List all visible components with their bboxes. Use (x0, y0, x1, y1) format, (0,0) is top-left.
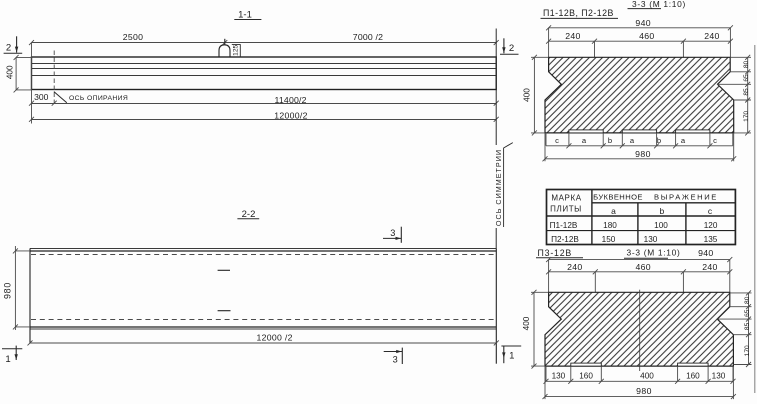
svg-text:80: 80 (744, 296, 751, 304)
svg-text:160: 160 (686, 372, 700, 381)
svg-text:65: 65 (744, 309, 751, 317)
svg-text:МАРКА: МАРКА (551, 193, 581, 202)
svg-text:12000 /2: 12000 /2 (256, 333, 292, 343)
svg-text:80: 80 (743, 61, 750, 69)
svg-text:130: 130 (552, 372, 566, 381)
svg-text:2: 2 (6, 42, 11, 53)
svg-text:240: 240 (567, 262, 582, 272)
svg-text:3-3 (М 1:10): 3-3 (М 1:10) (632, 0, 686, 9)
svg-text:85: 85 (743, 88, 750, 96)
svg-text:980: 980 (2, 282, 12, 299)
svg-text:65: 65 (743, 74, 750, 82)
svg-text:3: 3 (393, 355, 398, 365)
svg-text:П1-12В: П1-12В (550, 221, 578, 230)
svg-text:940: 940 (698, 248, 713, 258)
svg-text:ВЫРАЖЕНИЕ: ВЫРАЖЕНИЕ (654, 193, 718, 202)
svg-text:с: с (713, 136, 717, 145)
svg-text:400: 400 (523, 88, 532, 102)
svg-text:а: а (582, 136, 587, 145)
svg-text:300: 300 (34, 92, 49, 102)
svg-text:150: 150 (602, 235, 616, 244)
svg-text:3: 3 (390, 228, 395, 238)
svg-text:130: 130 (644, 235, 658, 244)
svg-text:П1-12В, П2-12В: П1-12В, П2-12В (543, 8, 614, 18)
svg-text:с: с (555, 136, 559, 145)
svg-text:400: 400 (640, 372, 654, 381)
svg-text:460: 460 (635, 262, 650, 272)
svg-text:100: 100 (654, 221, 668, 230)
svg-text:1: 1 (5, 354, 10, 365)
svg-text:а: а (681, 136, 686, 145)
svg-text:П3-12В: П3-12В (538, 248, 573, 258)
svg-text:а: а (611, 206, 616, 216)
svg-text:2: 2 (509, 43, 514, 54)
svg-text:460: 460 (639, 31, 654, 41)
svg-text:БУКВЕННОЕ: БУКВЕННОЕ (593, 193, 643, 202)
svg-text:1-1: 1-1 (238, 10, 252, 21)
svg-text:85: 85 (744, 322, 751, 330)
svg-text:170: 170 (743, 111, 750, 122)
svg-text:980: 980 (635, 149, 651, 159)
svg-text:а: а (630, 136, 635, 145)
svg-text:b: b (657, 136, 661, 145)
svg-text:125: 125 (232, 44, 239, 55)
svg-text:ПЛИТЫ: ПЛИТЫ (550, 204, 582, 213)
svg-text:980: 980 (636, 386, 652, 396)
svg-text:7000 /2: 7000 /2 (353, 32, 383, 42)
svg-text:ОСЬ ОПИРАНИЯ: ОСЬ ОПИРАНИЯ (69, 95, 128, 102)
svg-text:11400/2: 11400/2 (275, 95, 307, 105)
svg-text:3-3 (М 1:10): 3-3 (М 1:10) (626, 248, 680, 258)
svg-text:с: с (708, 206, 713, 216)
svg-text:b: b (608, 136, 612, 145)
svg-text:12000/2: 12000/2 (274, 111, 308, 121)
svg-text:940: 940 (635, 18, 651, 28)
svg-text:240: 240 (565, 31, 580, 41)
svg-text:135: 135 (704, 235, 718, 244)
svg-text:180: 180 (603, 221, 617, 230)
svg-text:120: 120 (704, 221, 718, 230)
svg-text:400: 400 (5, 65, 14, 79)
svg-text:240: 240 (702, 262, 717, 272)
svg-text:160: 160 (579, 372, 593, 381)
svg-text:b: b (660, 206, 665, 216)
svg-text:130: 130 (712, 372, 726, 381)
svg-text:П2-12В: П2-12В (551, 235, 579, 244)
svg-text:1: 1 (509, 351, 514, 362)
svg-text:170: 170 (744, 345, 751, 356)
svg-text:ОСЬ СИММЕТРИИ: ОСЬ СИММЕТРИИ (494, 149, 503, 226)
svg-text:400: 400 (522, 316, 531, 330)
svg-text:2500: 2500 (123, 32, 144, 42)
svg-text:240: 240 (704, 31, 719, 41)
